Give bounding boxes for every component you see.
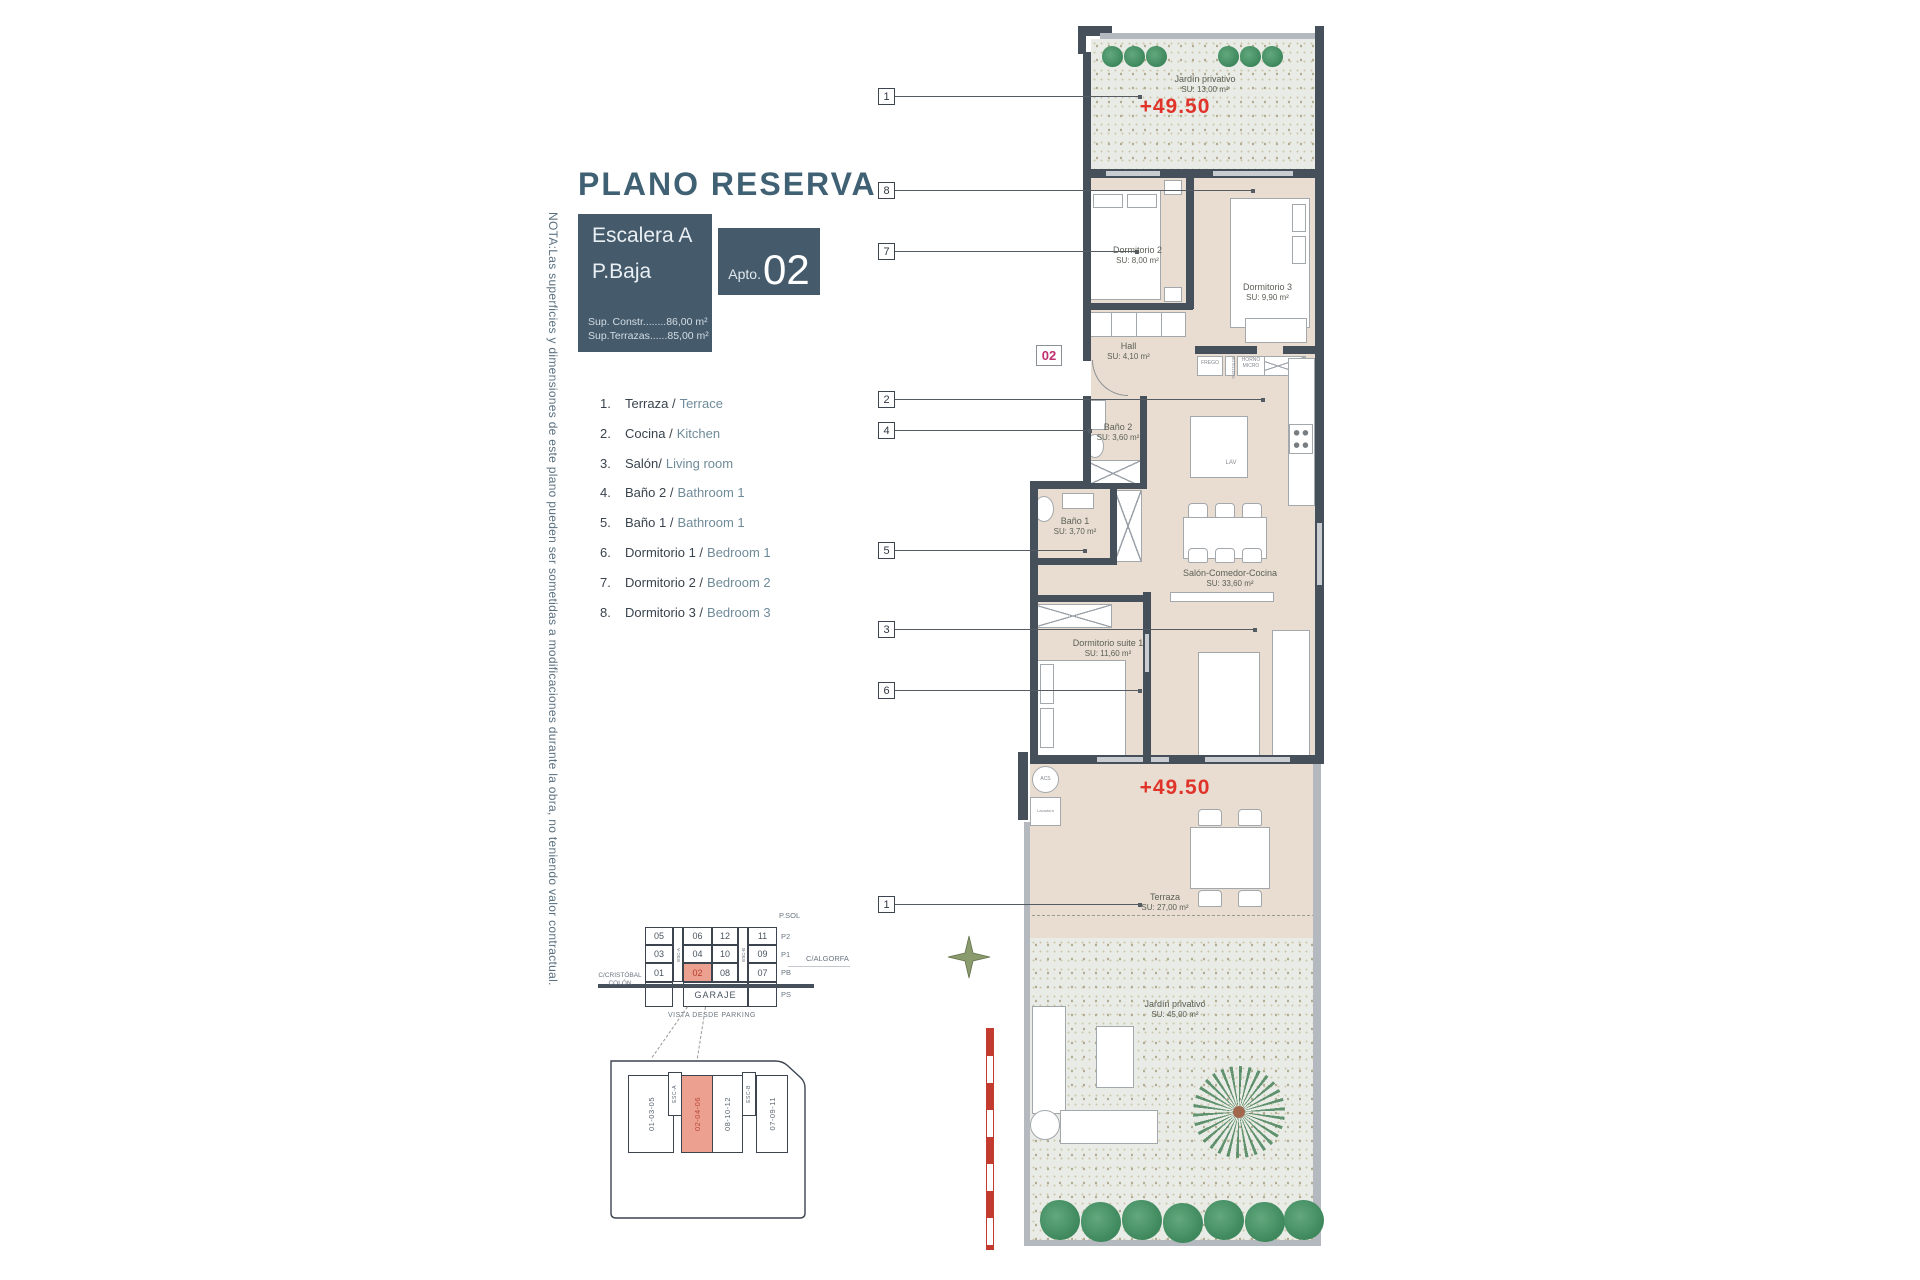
unit-number-tag: 02: [1036, 345, 1062, 366]
elevation-terrace: +49.50: [1110, 776, 1240, 800]
room-label-terraza: Terraza SU: 27,00 m²: [1135, 892, 1195, 913]
room-label-bano2: Baño 2 SU: 3,60 m²: [1088, 422, 1148, 443]
fixture-label-horno-micro: HORNO MICRO: [1237, 358, 1265, 370]
elevation-top: +49.50: [1110, 95, 1240, 119]
room-label-salon: Salón-Comedor-Cocina SU: 33,60 m²: [1160, 568, 1300, 589]
fixture-label-frego: FREGO: [1197, 361, 1223, 367]
fixture-label-lav: LAV: [1216, 460, 1246, 467]
fixture-label-botellero: BOTELLERO: [1225, 357, 1235, 375]
water-heater: ACS: [1032, 766, 1059, 793]
room-label-jardin-top: Jardín privativo SU: 13,00 m²: [1140, 74, 1270, 95]
room-label-dorm3: Dormitorio 3 SU: 9,90 m²: [1225, 282, 1310, 303]
room-label-hall: Hall SU: 4,10 m²: [1096, 341, 1161, 362]
washing-machine: Lavadora: [1030, 797, 1061, 826]
room-label-dorm2: Dormitorio 2 SU: 8,00 m²: [1095, 245, 1180, 266]
room-label-jardin-bottom: Jardín privativo SU: 45,00 m²: [1135, 999, 1215, 1020]
label-layer: Jardín privativo SU: 13,00 m² +49.50 Dor…: [0, 0, 1920, 1280]
room-label-bano1: Baño 1 SU: 3,70 m²: [1045, 516, 1105, 537]
room-label-suite: Dormitorio suite 1 SU: 11,60 m²: [1058, 638, 1158, 659]
